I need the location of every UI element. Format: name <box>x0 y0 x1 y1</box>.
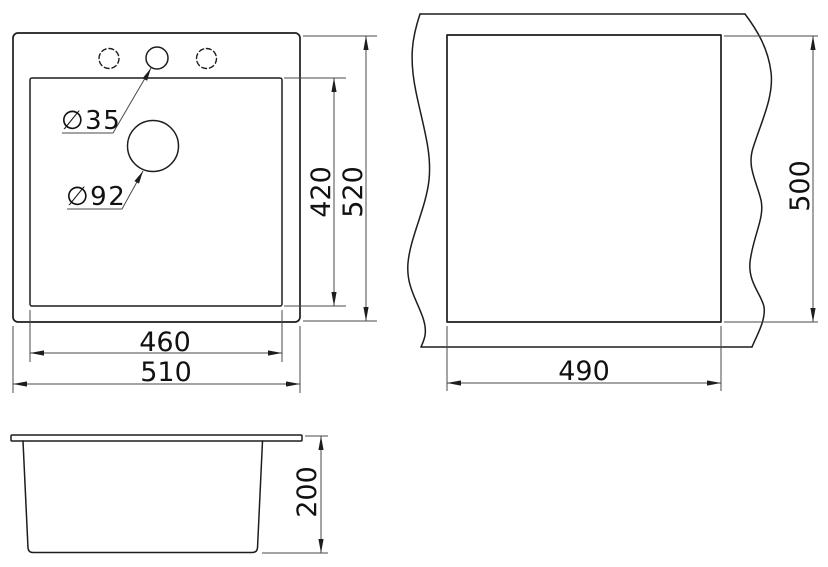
dimension-cutout-width: 490 <box>447 326 721 391</box>
drain-diameter-label: ∅92 <box>66 182 126 212</box>
bowl-width-value: 460 <box>139 327 191 358</box>
arrow-right <box>268 350 282 355</box>
plan-view-dimensions: ∅35 ∅92 420 <box>13 36 377 393</box>
leader-arrow-drain <box>134 171 143 184</box>
arrow-up <box>363 36 368 50</box>
cutout-opening-edge <box>447 35 721 322</box>
cutout-view-dimensions: 500 490 <box>447 36 818 391</box>
cutout-height-value: 500 <box>785 160 816 212</box>
dimension-bowl-height: 420 <box>284 78 346 306</box>
arrow-up <box>810 36 815 50</box>
plan-faucet-hole-center <box>146 47 168 69</box>
side-view-dimensions: 200 <box>262 436 328 553</box>
arrow-left <box>447 380 461 385</box>
arrow-down <box>363 307 368 321</box>
overall-height-value: 520 <box>338 166 369 218</box>
arrow-down <box>318 539 323 553</box>
countertop-break-line-right <box>745 14 771 347</box>
countertop-break-line-left <box>408 14 430 347</box>
arrow-left <box>30 350 44 355</box>
plan-faucet-hole-right-optional <box>197 49 217 69</box>
cutout-view <box>408 14 772 347</box>
sink-depth-value: 200 <box>292 466 323 518</box>
arrow-down <box>810 308 815 322</box>
arrow-up <box>318 436 323 450</box>
arrow-left <box>13 381 27 386</box>
cutout-width-value: 490 <box>558 356 610 387</box>
arrow-down <box>331 292 336 306</box>
technical-drawing-page: ∅35 ∅92 420 <box>0 0 828 567</box>
bowl-height-value: 420 <box>306 166 337 218</box>
plan-view <box>13 33 300 322</box>
side-view <box>11 435 302 553</box>
leader-drain-diameter: ∅92 <box>66 171 143 212</box>
plan-faucet-hole-left-optional <box>99 49 119 69</box>
overall-width-value: 510 <box>140 357 192 388</box>
plan-drain-hole <box>128 121 179 172</box>
arrow-right <box>707 380 721 385</box>
arrow-right <box>286 381 300 386</box>
plan-outer-edge <box>13 33 300 322</box>
side-rim-edge <box>11 435 302 441</box>
faucet-diameter-label: ∅35 <box>61 106 121 136</box>
side-basin-outline <box>23 441 263 553</box>
dimension-bowl-width: 460 <box>30 310 282 362</box>
sink-technical-drawing: ∅35 ∅92 420 <box>0 0 828 567</box>
dimension-sink-depth: 200 <box>262 436 328 553</box>
leader-arrow-faucet <box>143 68 151 81</box>
arrow-up <box>331 78 336 92</box>
